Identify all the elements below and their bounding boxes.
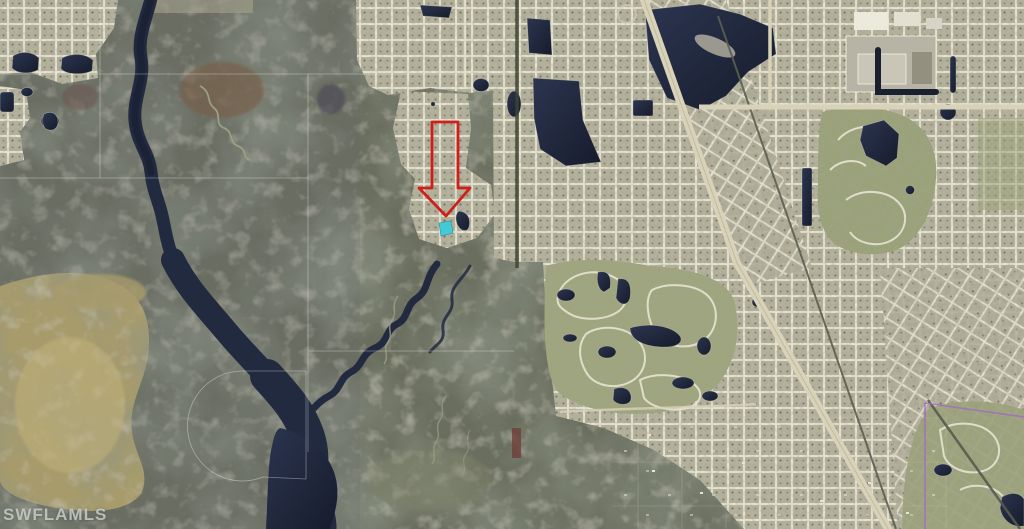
- watermark: SWFLAMLS: [3, 505, 107, 525]
- tan-marsh: [0, 273, 149, 511]
- highlighted-lot: [439, 221, 453, 236]
- commercial-area: [846, 12, 942, 92]
- aerial-map: SWFLAMLS: [0, 0, 1024, 529]
- aerial-map-canvas: [0, 0, 1024, 529]
